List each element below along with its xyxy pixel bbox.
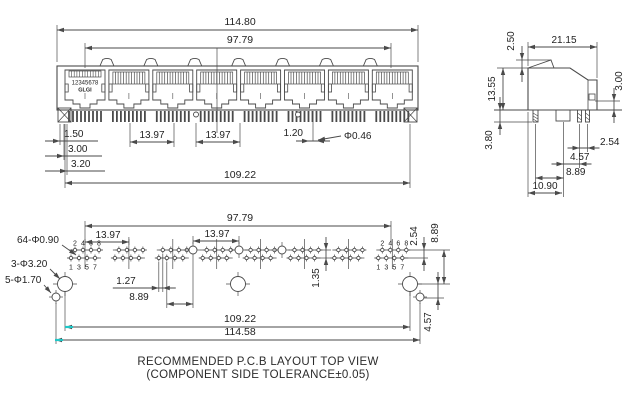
side-body-outline xyxy=(528,68,597,110)
port-side-tab xyxy=(102,84,105,92)
pin-hole-0.90 xyxy=(205,248,208,251)
drawing-line xyxy=(586,117,590,120)
solder-pin-side xyxy=(578,110,582,122)
dimension-label: 5-Φ1.70 xyxy=(5,275,42,286)
latch-bump xyxy=(100,58,114,66)
rj45-port: 12345678GLGI xyxy=(65,70,105,108)
pin-hole-0.90 xyxy=(257,248,260,251)
dimension-label: 2.50 xyxy=(506,31,517,51)
pin-hole-0.90 xyxy=(389,248,392,251)
pin-number: 2 xyxy=(380,241,384,248)
side-view: 2.5021.1513.553.003.802.544.578.8910.90 xyxy=(484,31,625,197)
drawing-sheet: 12345678GLGI114.8097.7913.9713.97109.221… xyxy=(0,0,642,415)
dim-arrow xyxy=(612,94,616,101)
rj45-port xyxy=(241,70,281,108)
dim-arrow xyxy=(520,68,524,75)
dimension-label: 1.35 xyxy=(311,268,322,288)
rj45-port xyxy=(328,70,368,108)
pin-hole-0.90 xyxy=(161,248,164,251)
pin-hole-0.90 xyxy=(69,256,72,259)
pin-hole-0.90 xyxy=(221,248,224,251)
dim-arrow xyxy=(57,28,64,32)
dim-arrow xyxy=(233,140,240,144)
dimension-label: 64-Φ0.90 xyxy=(17,235,59,246)
dim-arrow xyxy=(163,286,170,290)
pin-hole-0.90 xyxy=(309,248,312,251)
dimension-label: 1.27 xyxy=(116,276,136,287)
rj45-port xyxy=(372,70,412,108)
dim-arrow xyxy=(122,240,129,244)
dim-arrow xyxy=(536,176,543,180)
dimension-label: 3.80 xyxy=(484,130,495,150)
port-side-tab xyxy=(234,84,237,92)
port-side-tab xyxy=(365,84,368,92)
pin-hole-0.90 xyxy=(261,256,264,259)
dim-arrow xyxy=(167,140,174,144)
pin-hole-0.90 xyxy=(353,248,356,251)
front-view: 12345678GLGI114.8097.7913.9713.97109.221… xyxy=(45,16,418,188)
pin-number: 3 xyxy=(77,265,81,272)
hole-1.70 xyxy=(278,246,286,254)
latch-lever xyxy=(528,60,554,68)
pin-hole-0.90 xyxy=(97,248,100,251)
pin-number: 4 xyxy=(388,241,392,248)
dim-arrow xyxy=(413,338,420,342)
dim-arrow xyxy=(442,250,446,257)
port-side-tab xyxy=(146,84,149,92)
drawing-line xyxy=(533,116,538,119)
dim-arrow xyxy=(612,110,616,117)
dimension-label: 3.20 xyxy=(71,159,91,170)
pin-number: 2 xyxy=(73,241,77,248)
port-side-tab xyxy=(109,84,112,92)
dim-arrow xyxy=(557,162,564,166)
dim-arrow xyxy=(520,53,524,60)
dimension-label: 10.90 xyxy=(532,181,557,192)
pin-hole-0.90 xyxy=(165,256,168,259)
pin-hole-0.90 xyxy=(113,256,116,259)
dim-arrow xyxy=(498,122,502,129)
dim-arrow xyxy=(588,146,595,150)
dimension-label: 97.79 xyxy=(227,212,253,224)
hole-3.20 xyxy=(403,277,418,292)
port-side-tab xyxy=(153,84,156,92)
dim-arrow xyxy=(411,28,418,32)
caption-line-1: RECOMMENDED P.C.B LAYOUT TOP VIEW xyxy=(62,356,454,369)
latch-bump xyxy=(363,58,377,66)
dim-arrow xyxy=(442,277,446,284)
pin-hole-0.90 xyxy=(377,256,380,259)
port-side-tab xyxy=(321,84,324,92)
pin-number: 1 xyxy=(69,265,73,272)
dimension-label: 109.22 xyxy=(224,313,256,325)
dim-arrow xyxy=(384,224,391,228)
port-side-tab xyxy=(197,84,200,92)
port-side-tab xyxy=(328,84,331,92)
dim-arrow xyxy=(85,224,92,228)
dim-arrow xyxy=(302,139,309,143)
pin-hole-0.90 xyxy=(397,248,400,251)
dimension-label: 2.54 xyxy=(600,137,620,148)
pin-hole-0.90 xyxy=(249,248,252,251)
dimension-label: 13.97 xyxy=(95,230,120,241)
dim-arrow xyxy=(324,243,328,250)
pin-hole-0.90 xyxy=(289,256,292,259)
pin-hole-0.90 xyxy=(181,256,184,259)
pin-hole-0.90 xyxy=(393,256,396,259)
dimension-label: Φ0.46 xyxy=(344,131,372,142)
pin-hole-0.90 xyxy=(269,256,272,259)
pin-hole-0.90 xyxy=(77,256,80,259)
dim-arrow xyxy=(196,140,203,144)
plastic-post xyxy=(556,110,570,121)
dimension-label: 13.97 xyxy=(139,130,164,141)
dim-arrow xyxy=(384,46,391,50)
pin-hole-0.90 xyxy=(337,248,340,251)
pin-hole-0.90 xyxy=(349,256,352,259)
dimension-label: 13.97 xyxy=(204,229,229,240)
pin-hole-0.90 xyxy=(401,256,404,259)
dim-arrow xyxy=(436,298,440,305)
dim-arrow xyxy=(186,302,193,306)
pin-hole-0.90 xyxy=(137,256,140,259)
port-side-tab xyxy=(241,84,244,92)
solder-pin-side xyxy=(586,110,590,122)
dim-arrow xyxy=(403,181,410,185)
pin-hole-0.90 xyxy=(305,256,308,259)
dim-arrow xyxy=(57,154,64,158)
pin-hole-0.90 xyxy=(125,248,128,251)
pin-hole-0.90 xyxy=(141,248,144,251)
dim-arrow xyxy=(167,302,174,306)
dim-arrow xyxy=(232,239,239,243)
pin-hole-0.90 xyxy=(297,256,300,259)
latch-bump xyxy=(276,58,290,66)
rj45-port xyxy=(109,70,149,108)
round-post xyxy=(296,112,301,117)
port-side-tab xyxy=(372,84,375,92)
dimension-label: 21.15 xyxy=(551,35,576,46)
pin-hole-0.90 xyxy=(341,256,344,259)
pin-hole-0.90 xyxy=(357,256,360,259)
pin-hole-0.90 xyxy=(201,256,204,259)
drawing-line xyxy=(578,113,582,116)
hole-1.70 xyxy=(235,246,243,254)
dimension-label: 3-Φ3.20 xyxy=(11,259,48,270)
hole-1.70 xyxy=(52,293,60,301)
dim-arrow xyxy=(130,140,137,144)
pin-hole-0.90 xyxy=(217,256,220,259)
pin-hole-0.90 xyxy=(317,248,320,251)
dimension-label: 1.20 xyxy=(284,128,304,139)
dim-arrow xyxy=(422,243,426,250)
side-window xyxy=(589,94,595,100)
pin-hole-0.90 xyxy=(93,256,96,259)
latch-bump xyxy=(232,58,246,66)
dimension-label: 13.55 xyxy=(487,76,498,101)
port-side-tab xyxy=(409,84,412,92)
pin-hole-0.90 xyxy=(313,256,316,259)
pin-hole-0.90 xyxy=(345,248,348,251)
pin-hole-0.90 xyxy=(333,256,336,259)
dim-arrow xyxy=(436,277,440,284)
pin-number: 8 xyxy=(404,241,408,248)
dim-arrow xyxy=(65,181,72,185)
pin-hole-0.90 xyxy=(265,248,268,251)
dim-arrow xyxy=(193,239,200,243)
port-side-tab xyxy=(285,84,288,92)
dim-arrow xyxy=(590,45,597,49)
dim-arrow xyxy=(422,258,426,265)
pin-hole-0.90 xyxy=(293,248,296,251)
hole-3.20 xyxy=(231,277,246,292)
rj45-port xyxy=(285,70,325,108)
pin-hole-0.90 xyxy=(385,256,388,259)
pin-hole-0.90 xyxy=(213,248,216,251)
drawing-line xyxy=(578,117,582,120)
dimension-label: 114.58 xyxy=(224,326,255,338)
drawing-line xyxy=(533,113,538,116)
dim-arrow xyxy=(501,68,505,75)
port-side-tab xyxy=(190,84,193,92)
dimension-label: 4.57 xyxy=(423,312,434,332)
dim-arrow xyxy=(403,325,410,329)
pin-hole-0.90 xyxy=(117,248,120,251)
pin-number: 4 xyxy=(81,241,85,248)
pin-hole-0.90 xyxy=(89,248,92,251)
pin-hole-0.90 xyxy=(253,256,256,259)
dimension-label: 4.57 xyxy=(570,152,590,163)
brand-mark: GLGI xyxy=(78,88,92,94)
pin-hole-0.90 xyxy=(173,256,176,259)
pin-hole-0.90 xyxy=(157,256,160,259)
port-pin-digits: 12345678 xyxy=(72,81,99,87)
pin-number: 5 xyxy=(85,265,89,272)
dim-arrow xyxy=(528,45,535,49)
pin-number: 5 xyxy=(392,265,396,272)
hole-1.70 xyxy=(189,246,197,254)
pcb-layout-view: 246813572468135797.7913.9713.971.278.891… xyxy=(5,212,450,344)
hole-1.70 xyxy=(416,293,424,301)
pin-hole-0.90 xyxy=(405,248,408,251)
pin-hole-0.90 xyxy=(81,248,84,251)
dimension-label: 2.54 xyxy=(409,226,420,246)
port-side-tab xyxy=(65,84,68,92)
dim-arrow xyxy=(152,286,159,290)
port-side-tab xyxy=(277,84,280,92)
dimension-label: 3.00 xyxy=(68,144,88,155)
caption-line-2: (COMPONENT SIDE TOLERANCE±0.05) xyxy=(62,369,454,382)
dim-arrow xyxy=(573,146,580,150)
latch-bump xyxy=(319,58,333,66)
dimension-label: 97.79 xyxy=(227,34,253,46)
dimension-label: 8.89 xyxy=(430,223,441,243)
dimension-label: 3.00 xyxy=(614,71,625,91)
drawing-caption: RECOMMENDED P.C.B LAYOUT TOP VIEW (COMPO… xyxy=(62,356,454,382)
pin-hole-0.90 xyxy=(169,248,172,251)
rj45-port xyxy=(153,70,193,108)
dim-arrow xyxy=(60,169,67,173)
dim-arrow xyxy=(324,258,328,265)
pin-hole-0.90 xyxy=(177,248,180,251)
pin-hole-0.90 xyxy=(225,256,228,259)
pin-hole-0.90 xyxy=(361,248,364,251)
pin-hole-0.90 xyxy=(85,256,88,259)
pin-hole-0.90 xyxy=(121,256,124,259)
pin-number: 1 xyxy=(376,265,380,272)
pin-number: 7 xyxy=(93,265,97,272)
dimension-label: 8.89 xyxy=(566,167,586,178)
dim-arrow xyxy=(498,103,502,110)
dim-arrow xyxy=(85,46,92,50)
pin-number: 6 xyxy=(396,241,400,248)
latch-bump xyxy=(188,58,202,66)
pin-number: 3 xyxy=(384,265,388,272)
dim-arrow xyxy=(53,139,60,143)
dimension-label: 8.89 xyxy=(129,292,149,303)
pin-hole-0.90 xyxy=(301,248,304,251)
connector-technical-drawing: 12345678GLGI114.8097.7913.9713.97109.221… xyxy=(0,0,642,415)
pin-hole-0.90 xyxy=(245,256,248,259)
pin-hole-0.90 xyxy=(133,248,136,251)
drawing-line xyxy=(586,113,590,116)
dimension-label: 114.80 xyxy=(224,16,255,28)
pin-number: 7 xyxy=(400,265,404,272)
front-housing-outline xyxy=(57,66,418,110)
dimension-label: 1.50 xyxy=(64,129,84,140)
pin-hole-0.90 xyxy=(381,248,384,251)
latch-bump xyxy=(144,58,158,66)
dimension-label: 13.97 xyxy=(205,130,230,141)
dimension-label: 109.22 xyxy=(224,169,256,181)
pin-hole-0.90 xyxy=(129,256,132,259)
pin-hole-0.90 xyxy=(209,256,212,259)
round-post xyxy=(194,112,199,117)
pin-hole-0.90 xyxy=(73,248,76,251)
dim-arrow xyxy=(557,176,564,180)
